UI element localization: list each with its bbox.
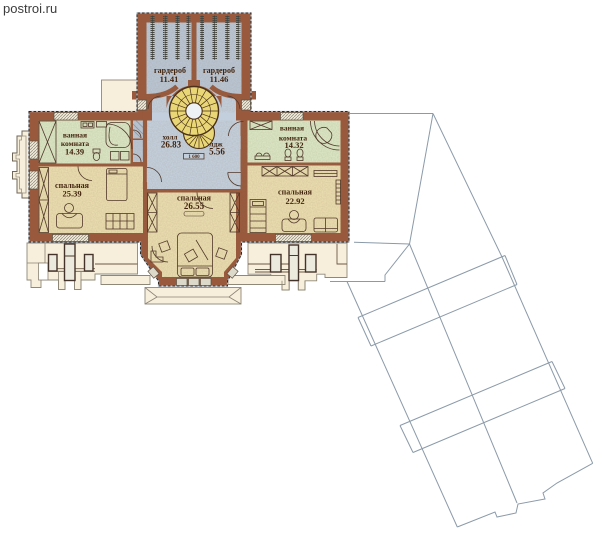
svg-text:ванная: ванная bbox=[280, 124, 304, 133]
svg-text:14.32: 14.32 bbox=[284, 140, 303, 150]
svg-text:25.39: 25.39 bbox=[62, 189, 81, 199]
svg-text:5.56: 5.56 bbox=[209, 147, 225, 157]
svg-text:1 600: 1 600 bbox=[188, 155, 200, 160]
svg-text:11.41: 11.41 bbox=[160, 74, 179, 84]
svg-text:26.55: 26.55 bbox=[184, 201, 205, 211]
svg-text:26.83: 26.83 bbox=[161, 140, 182, 150]
svg-text:22.92: 22.92 bbox=[285, 196, 304, 206]
svg-text:postroi.ru: postroi.ru bbox=[3, 1, 57, 16]
svg-text:14.39: 14.39 bbox=[65, 147, 84, 157]
svg-text:11.46: 11.46 bbox=[210, 74, 229, 84]
